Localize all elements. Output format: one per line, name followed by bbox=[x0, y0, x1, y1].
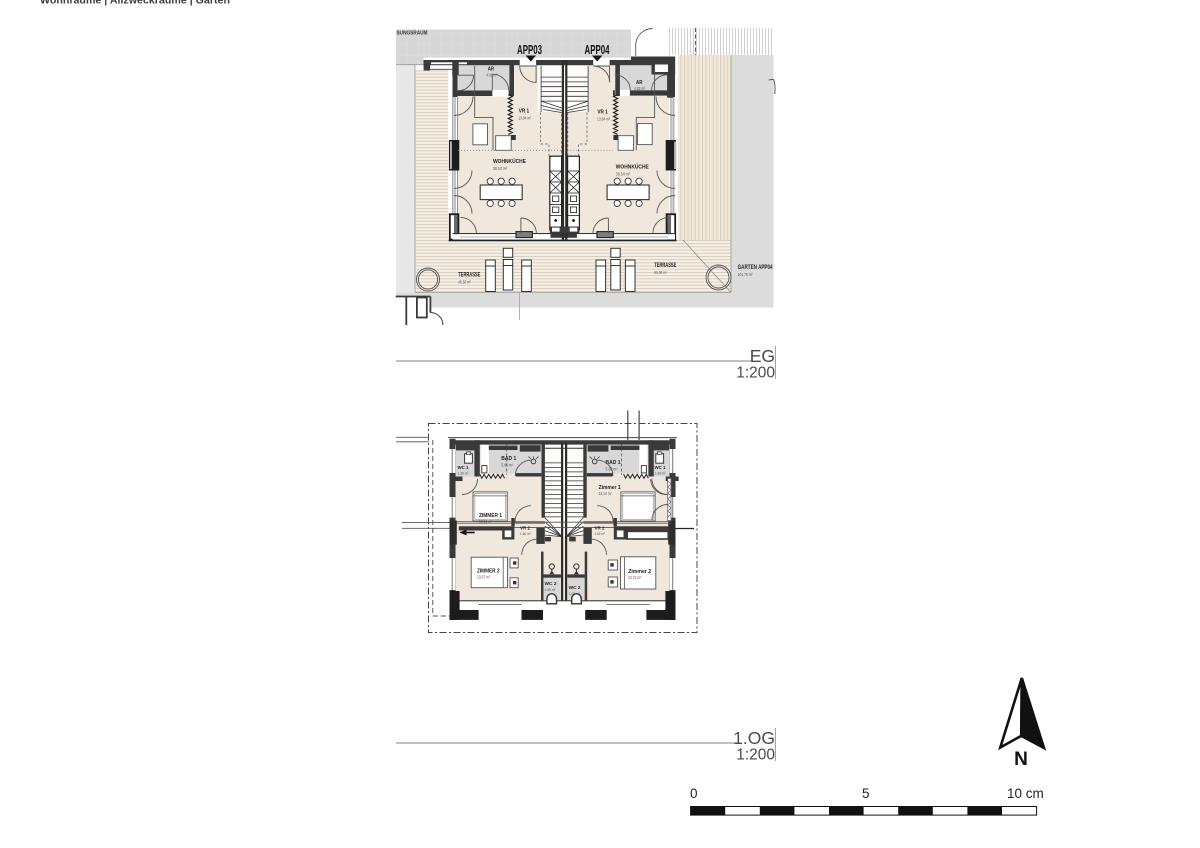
svg-text:1.55 m²: 1.55 m² bbox=[545, 587, 557, 592]
svg-text:1:200: 1:200 bbox=[736, 747, 775, 764]
svg-text:5: 5 bbox=[862, 786, 870, 801]
svg-text:5.80 m²: 5.80 m² bbox=[501, 463, 514, 468]
svg-text:BAD 1: BAD 1 bbox=[501, 456, 516, 462]
svg-text:VR 1: VR 1 bbox=[519, 109, 530, 115]
svg-text:0: 0 bbox=[690, 786, 698, 801]
svg-text:TERRASSE: TERRASSE bbox=[654, 262, 676, 269]
svg-text:TERRASSE: TERRASSE bbox=[458, 272, 480, 279]
svg-text:VR 1: VR 1 bbox=[597, 110, 608, 116]
svg-text:13.14 m²: 13.14 m² bbox=[599, 491, 612, 496]
svg-text:APP04: APP04 bbox=[585, 42, 610, 57]
svg-text:EG: EG bbox=[750, 346, 775, 366]
svg-text:101.79 m²: 101.79 m² bbox=[738, 272, 753, 277]
svg-text:WOHNKÜCHE: WOHNKÜCHE bbox=[616, 164, 649, 171]
svg-text:23.57 m²: 23.57 m² bbox=[477, 575, 490, 580]
svg-text:SUNGSRAUM: SUNGSRAUM bbox=[397, 31, 428, 37]
svg-text:4.63 m²: 4.63 m² bbox=[634, 86, 645, 91]
svg-text:1.38 m²: 1.38 m² bbox=[458, 471, 470, 476]
svg-text:13.84 m²: 13.84 m² bbox=[597, 117, 610, 122]
svg-text:1.OG: 1.OG bbox=[733, 728, 775, 748]
svg-text:13.14 m²: 13.14 m² bbox=[479, 519, 492, 524]
svg-text:13.84 m²: 13.84 m² bbox=[518, 116, 531, 121]
svg-text:BAD 1: BAD 1 bbox=[606, 460, 621, 466]
svg-text:38.53 m²: 38.53 m² bbox=[493, 166, 507, 171]
svg-text:38.54 m²: 38.54 m² bbox=[616, 172, 630, 177]
svg-text:APP03: APP03 bbox=[517, 42, 542, 57]
svg-text:4.61 m²: 4.61 m² bbox=[486, 73, 497, 78]
svg-text:1.38 m²: 1.38 m² bbox=[655, 471, 667, 476]
svg-text:23.72 m²: 23.72 m² bbox=[628, 575, 641, 580]
svg-text:N: N bbox=[1014, 749, 1028, 770]
svg-text:45.56 m²: 45.56 m² bbox=[458, 280, 471, 285]
svg-text:WOHNKÜCHE: WOHNKÜCHE bbox=[493, 158, 526, 165]
svg-text:10 cm: 10 cm bbox=[1007, 786, 1044, 801]
svg-text:GARTEN APP04: GARTEN APP04 bbox=[738, 264, 773, 271]
svg-text:Wohnräume | Allzweckräume | Gä: Wohnräume | Allzweckräume | Gärten bbox=[40, 0, 230, 7]
svg-text:1.66 m²: 1.66 m² bbox=[520, 531, 531, 536]
svg-text:65.08 m²: 65.08 m² bbox=[654, 270, 667, 275]
svg-text:1:200: 1:200 bbox=[736, 365, 775, 382]
svg-text:1.69 m²: 1.69 m² bbox=[595, 531, 606, 536]
